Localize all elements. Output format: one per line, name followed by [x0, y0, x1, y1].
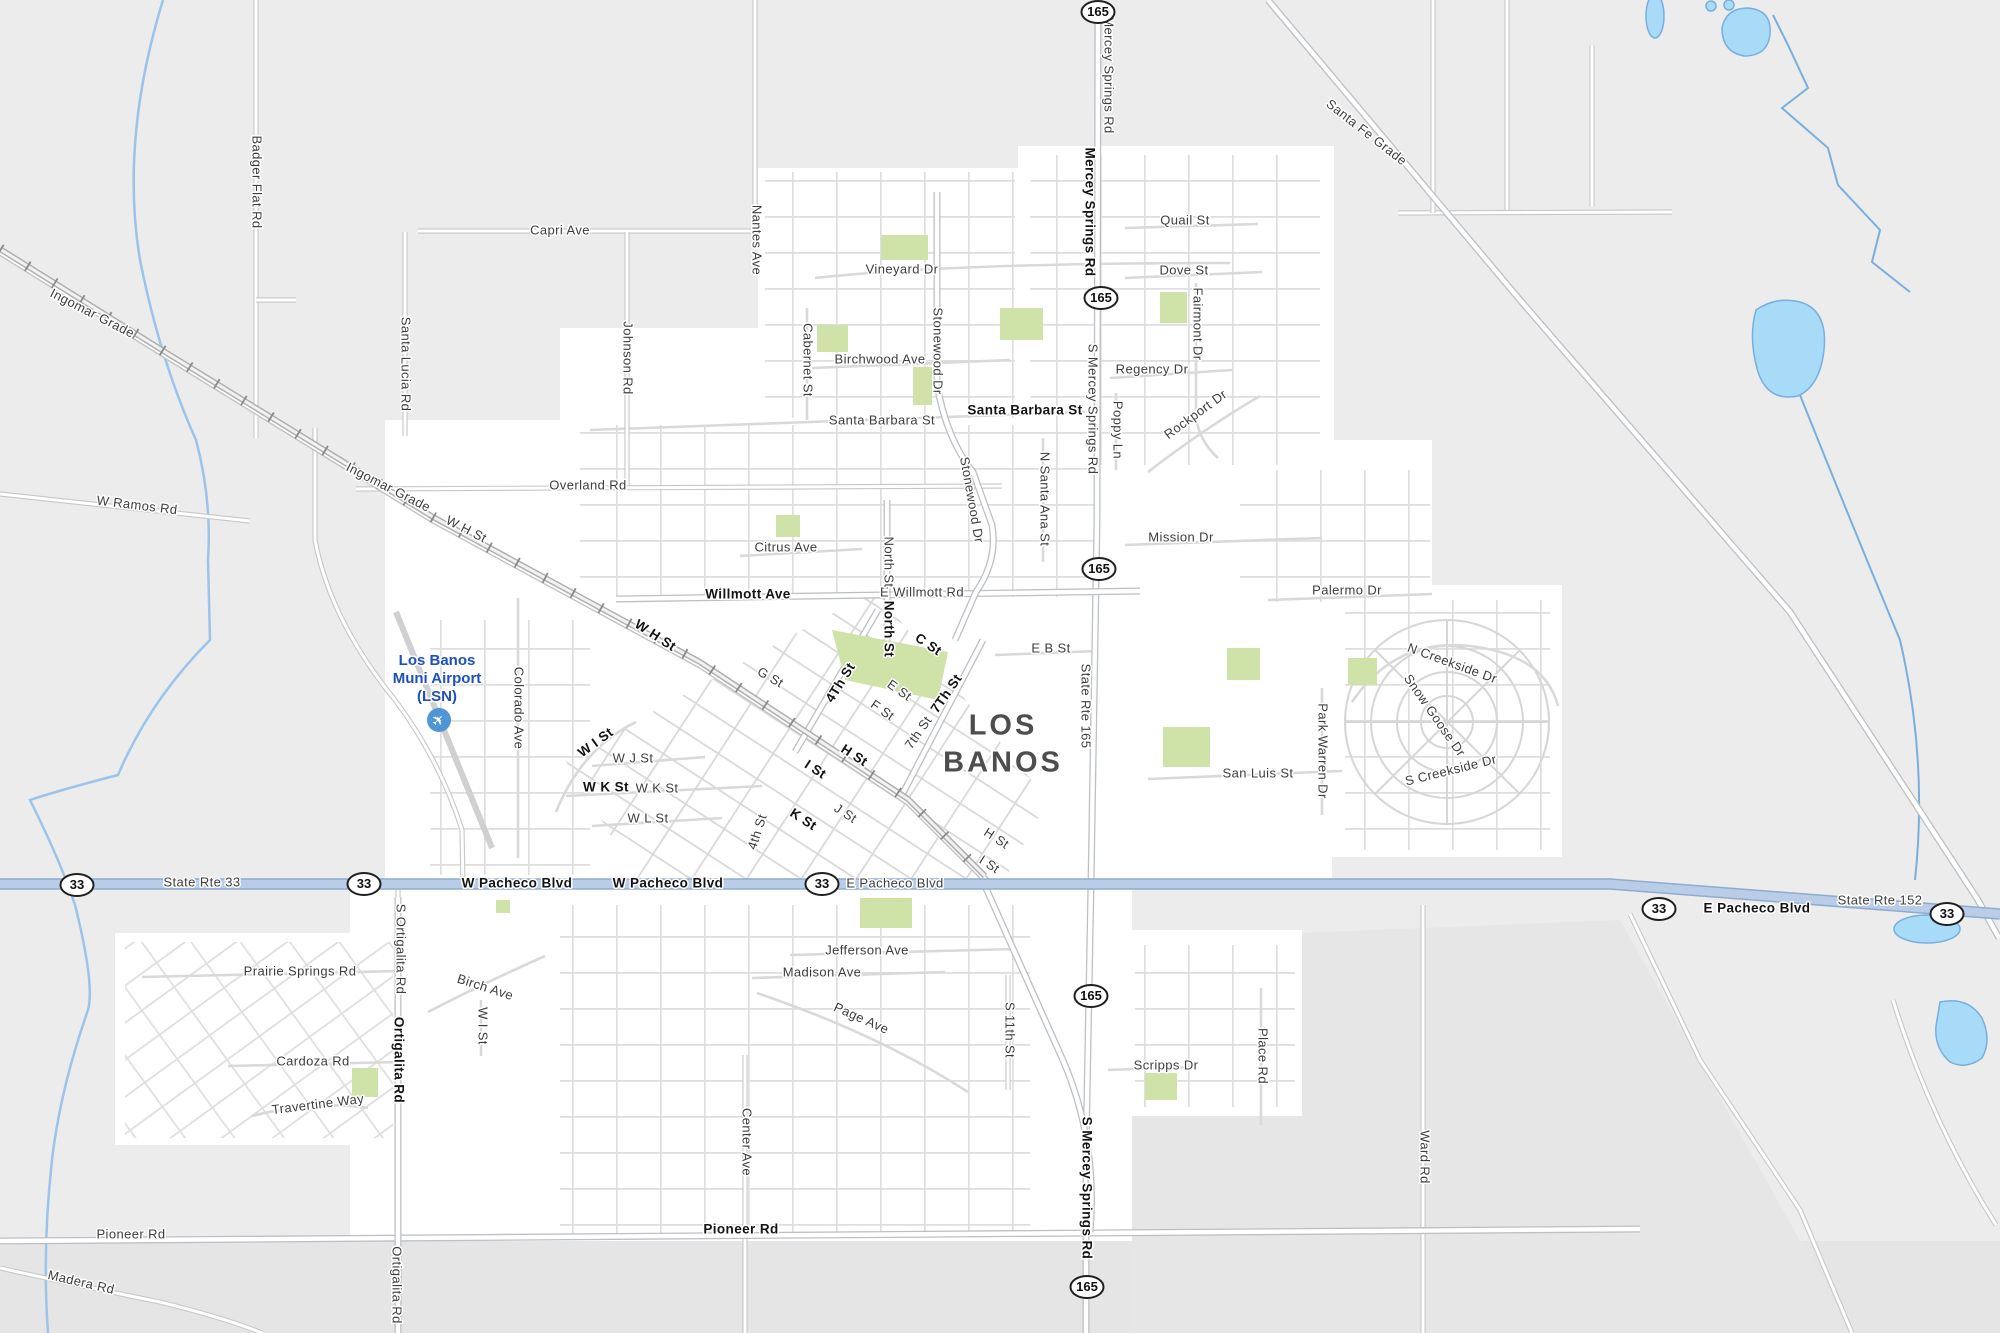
road-label: W K St: [636, 780, 679, 795]
road-label: Prairie Springs Rd: [244, 963, 357, 978]
road-label: Vineyard Dr: [866, 261, 939, 276]
svg-text:165: 165: [1090, 290, 1112, 305]
park: [1000, 308, 1043, 340]
park: [913, 367, 932, 405]
svg-text:165: 165: [1076, 1279, 1098, 1294]
road-label: Poppy Ln: [1111, 401, 1126, 459]
road-label: W Pacheco Blvd: [613, 876, 724, 891]
park: [1145, 1073, 1177, 1100]
road-label: S Mercey Springs Rd: [1086, 344, 1101, 474]
route-shield: 33: [348, 873, 381, 895]
road-label: E Pacheco Blvd: [1704, 901, 1811, 916]
park: [860, 898, 912, 928]
road-label: Ortigalita Rd: [391, 1017, 406, 1103]
svg-text:33: 33: [70, 877, 84, 892]
route-shield: 165: [1083, 558, 1116, 580]
road-label: Santa Barbara St: [967, 403, 1082, 418]
road-label: W L St: [628, 810, 669, 825]
road-label: Willmott Ave: [705, 587, 791, 602]
park: [1163, 727, 1210, 767]
road-label: W J St: [613, 750, 654, 765]
road-label: Dove St: [1159, 262, 1208, 277]
road-label: State Rte 152: [1838, 892, 1923, 907]
road-label: Mission Dr: [1148, 529, 1214, 544]
svg-text:165: 165: [1087, 4, 1109, 19]
road-label: Fairmont Dr: [1191, 287, 1206, 360]
city-name-line2: BANOS: [943, 747, 1063, 779]
park: [496, 900, 510, 913]
background-layer: [0, 0, 2000, 1333]
road-label: W Pacheco Blvd: [462, 876, 573, 891]
map-canvas[interactable]: Badger Flat RdIngomar GradeIngomar Grade…: [0, 0, 2000, 1333]
road-label: Santa Lucia Rd: [399, 317, 414, 412]
svg-text:33: 33: [815, 876, 829, 891]
airport-name-line3: (LSN): [417, 688, 457, 705]
road-label: Park Warren Dr: [1316, 703, 1331, 799]
road-label: Pioneer Rd: [96, 1226, 165, 1241]
park: [881, 235, 928, 260]
road-label: Stonewood Dr: [931, 307, 946, 394]
route-shield: 33: [1643, 898, 1676, 920]
road-label: Madison Ave: [783, 964, 862, 979]
road-label: Palermo Dr: [1312, 582, 1382, 597]
route-shield: 165: [1071, 1276, 1104, 1298]
road-label: North St: [881, 601, 896, 658]
road-label: Colorado Ave: [512, 667, 527, 750]
airport-name-line2: Muni Airport: [393, 670, 482, 687]
road-label: S 11th St: [1003, 1002, 1018, 1058]
road-label: S Ortigalita Rd: [394, 904, 409, 995]
route-shield: 33: [1931, 903, 1964, 925]
road-label: Cabernet St: [801, 323, 816, 397]
park: [1227, 648, 1260, 680]
park: [817, 325, 848, 352]
road-label: W I St: [476, 1007, 491, 1045]
airport-name-line1: Los Banos: [399, 652, 476, 669]
svg-text:33: 33: [1652, 901, 1666, 916]
road-label: N Santa Ana St: [1038, 452, 1053, 547]
route-shield: 33: [806, 873, 839, 895]
svg-text:33: 33: [1940, 906, 1954, 921]
road-label: Ward Rd: [1418, 1130, 1433, 1184]
road-label: State Rte 33: [163, 874, 240, 889]
road-label: Center Ave: [740, 1108, 755, 1176]
route-shield: 165: [1082, 1, 1115, 23]
route-shield: 165: [1075, 985, 1108, 1007]
road-label: Cardoza Rd: [276, 1053, 349, 1068]
road-label: Scripps Dr: [1134, 1057, 1199, 1072]
road-label: North St: [882, 537, 897, 588]
park: [1160, 292, 1187, 323]
svg-text:33: 33: [357, 876, 371, 891]
road-label: Johnson Rd: [621, 321, 636, 394]
svg-text:165: 165: [1088, 561, 1110, 576]
road-label: State Rte 165: [1079, 664, 1094, 749]
road-label: Mercey Springs Rd: [1102, 16, 1117, 133]
road-label: Birchwood Ave: [835, 351, 926, 366]
svg-text:165: 165: [1080, 988, 1102, 1003]
city-name-line1: LOS: [969, 710, 1038, 742]
road-label: Ortigalita Rd: [390, 1246, 405, 1323]
road-label: San Luis St: [1223, 765, 1294, 780]
road-label: Quail St: [1160, 212, 1209, 227]
road-label: S Mercey Springs Rd: [1079, 1117, 1094, 1260]
park: [1348, 658, 1377, 685]
airplane-icon: ✈: [427, 708, 451, 732]
road-label: Mercey Springs Rd: [1082, 147, 1097, 276]
road-label: E Pacheco Blvd: [846, 875, 943, 890]
road-label: Regency Dr: [1116, 361, 1189, 376]
rural-road: [1398, 212, 1672, 213]
road-label: Place Rd: [1256, 1028, 1271, 1084]
park: [776, 515, 800, 537]
road-label: E B St: [1031, 640, 1070, 655]
road-label: Overland Rd: [549, 477, 626, 492]
route-shield: 165: [1085, 287, 1118, 309]
road-label: Santa Barbara St: [829, 412, 935, 427]
map-svg[interactable]: Badger Flat RdIngomar GradeIngomar Grade…: [0, 0, 2000, 1333]
road-label: Nantes Ave: [750, 205, 765, 275]
road-label: Citrus Ave: [754, 539, 817, 554]
road-label: Capri Ave: [530, 222, 590, 237]
road-label: Jefferson Ave: [825, 942, 909, 957]
road-label: Badger Flat Rd: [250, 135, 265, 228]
road-label: W K St: [583, 780, 629, 795]
road-label: Pioneer Rd: [703, 1222, 778, 1237]
route-shield: 33: [61, 874, 94, 896]
